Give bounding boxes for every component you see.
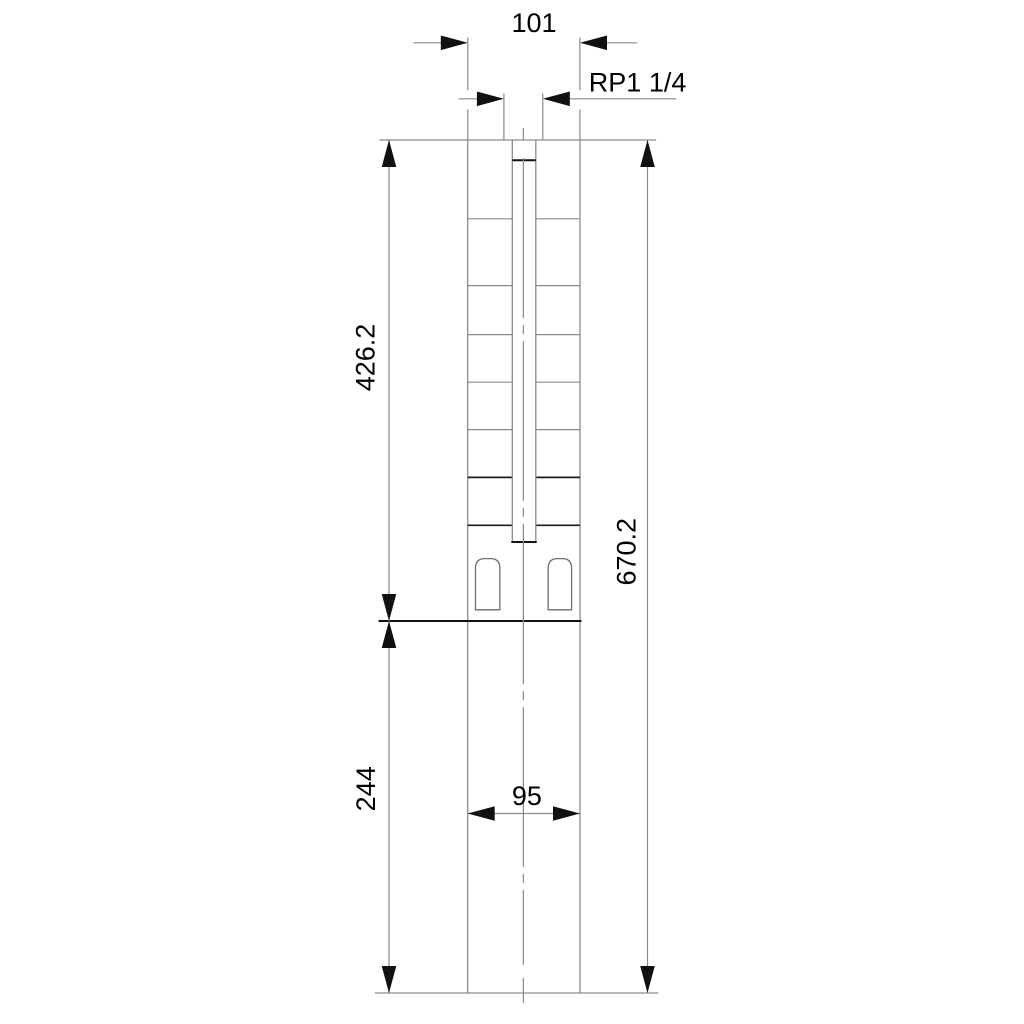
svg-text:670.2: 670.2: [612, 518, 642, 586]
svg-text:101: 101: [511, 8, 556, 38]
svg-text:95: 95: [512, 781, 542, 811]
svg-text:244: 244: [351, 766, 381, 811]
svg-text:426.2: 426.2: [350, 324, 380, 392]
svg-text:RP1 1/4: RP1 1/4: [589, 68, 687, 98]
